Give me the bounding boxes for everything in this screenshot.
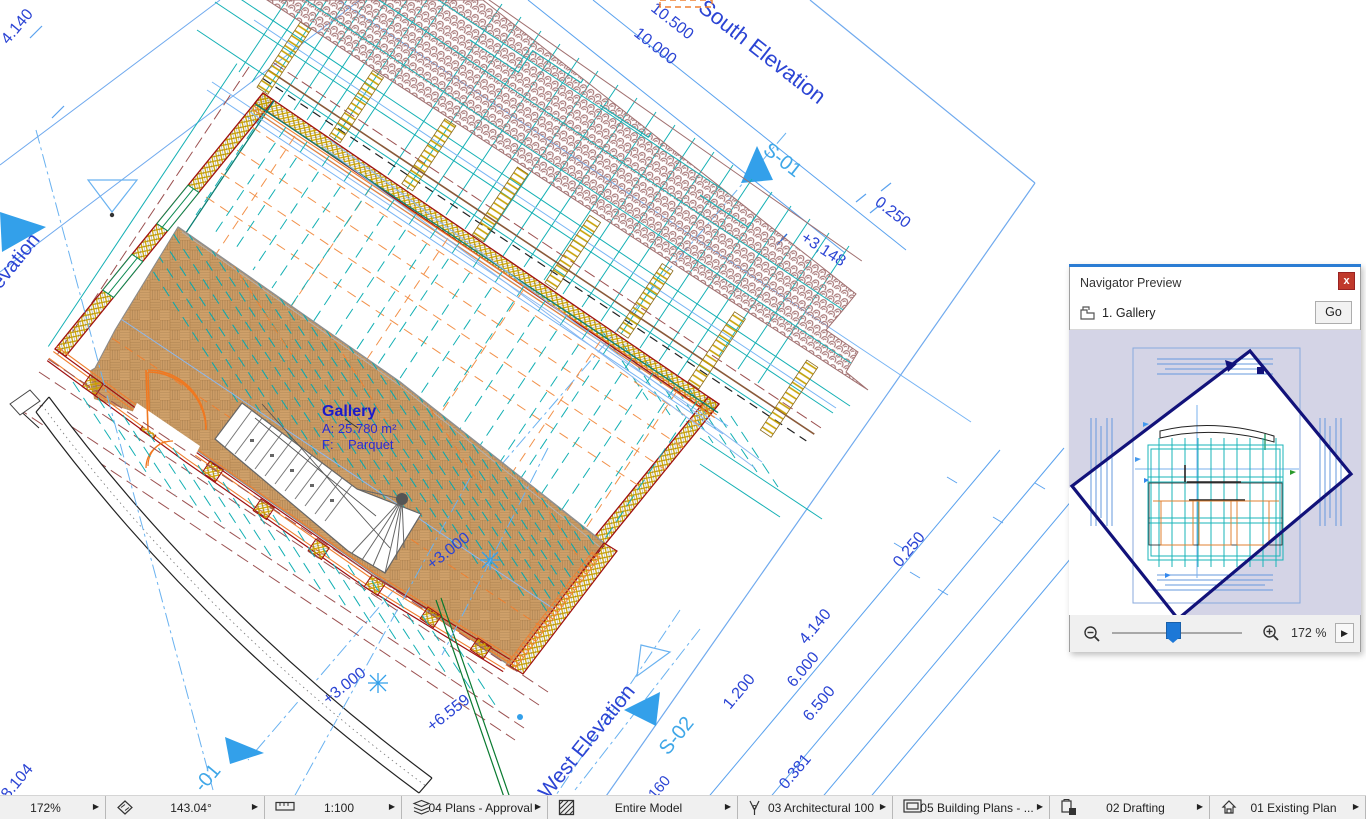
svg-text:A: 25.780 m²: A: 25.780 m² bbox=[322, 421, 397, 436]
svg-text:F: Parquet: F: Parquet bbox=[322, 437, 394, 452]
svg-text:Gallery: Gallery bbox=[322, 403, 376, 420]
